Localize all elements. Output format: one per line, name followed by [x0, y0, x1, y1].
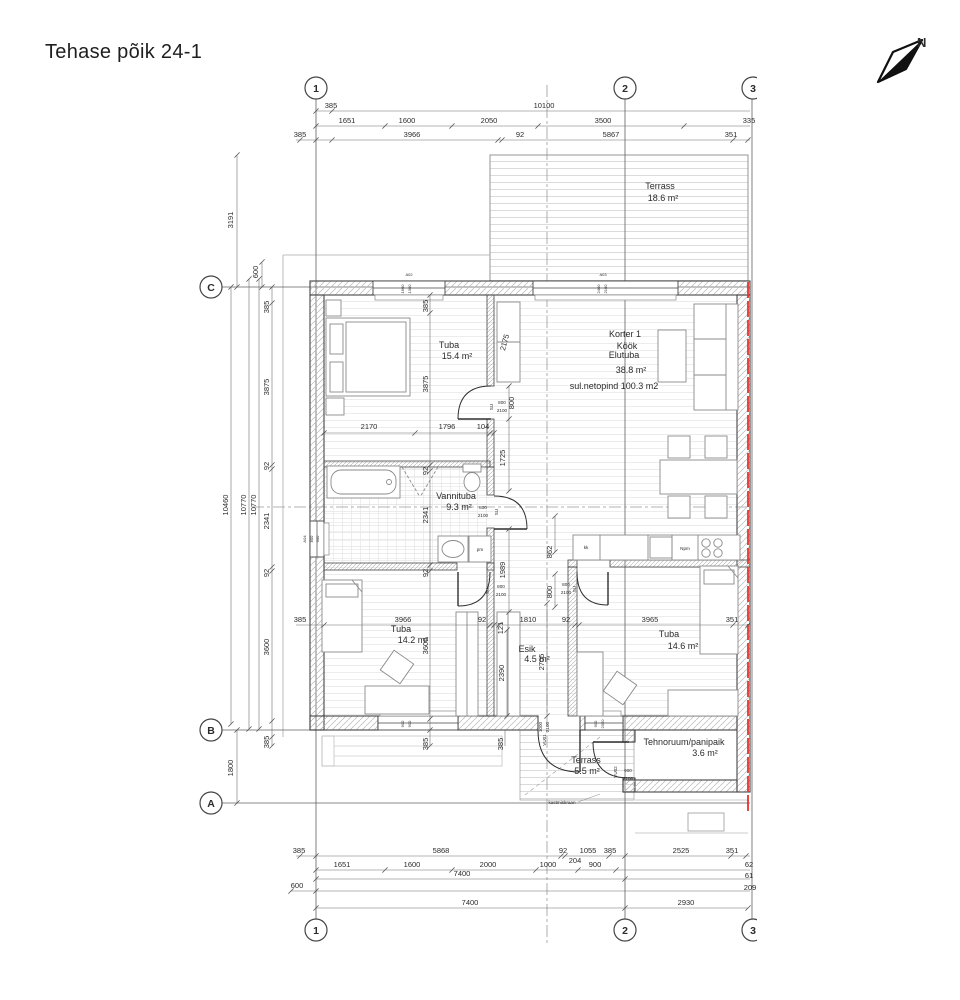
- floor-plan-drawing: Tehase põik 24-1 N: [0, 0, 960, 1000]
- svg-text:385: 385: [294, 615, 307, 624]
- hall-name: Esik: [518, 644, 536, 654]
- svg-text:600: 600: [315, 535, 320, 542]
- svg-text:351: 351: [726, 846, 739, 855]
- svg-text:800: 800: [562, 582, 570, 587]
- svg-text:62: 62: [745, 860, 753, 869]
- bedroom2-name: Tuba: [391, 624, 411, 634]
- svg-text:2100: 2100: [497, 408, 508, 413]
- washbasin: [438, 536, 468, 562]
- svg-text:7400: 7400: [454, 869, 471, 878]
- south-deck-steps: [322, 736, 502, 766]
- svg-text:3191: 3191: [226, 212, 235, 229]
- bathroom-name: Vannituba: [436, 491, 476, 501]
- svg-text:SU: SU: [489, 404, 494, 410]
- svg-text:3966: 3966: [404, 130, 421, 139]
- drawing-title: Tehase põik 24-1: [45, 41, 202, 63]
- svg-text:92: 92: [516, 130, 524, 139]
- svg-text:862: 862: [545, 546, 554, 559]
- svg-text:1725: 1725: [498, 450, 507, 467]
- svg-text:14.6 m²: 14.6 m²: [668, 641, 699, 651]
- svg-text:800: 800: [498, 400, 506, 405]
- svg-text:385: 385: [421, 738, 430, 751]
- svg-text:2000: 2000: [480, 860, 497, 869]
- svg-text:92: 92: [262, 462, 271, 470]
- svg-text:2100: 2100: [623, 776, 634, 781]
- svg-text:92: 92: [562, 615, 570, 624]
- svg-text:2100: 2100: [496, 592, 507, 597]
- svg-text:1: 1: [313, 925, 319, 937]
- window-a02: A02 1600 1300: [373, 272, 445, 300]
- svg-text:1: 1: [313, 83, 319, 95]
- svg-text:2400: 2400: [596, 284, 601, 294]
- svg-text:2050: 2050: [481, 116, 498, 125]
- terrace-south-name: Terrass: [571, 755, 601, 765]
- coffee-table: [658, 330, 686, 382]
- svg-text:800: 800: [479, 505, 487, 510]
- svg-text:92: 92: [262, 569, 271, 577]
- svg-text:3875: 3875: [262, 379, 271, 396]
- svg-text:351: 351: [726, 615, 739, 624]
- kitchen-kk-label: kk: [584, 545, 589, 550]
- window-a04-code: A04: [302, 535, 307, 543]
- svg-text:3.6 m²: 3.6 m²: [692, 748, 718, 758]
- svg-text:385: 385: [325, 101, 338, 110]
- svg-text:92: 92: [421, 569, 430, 577]
- svg-text:SU: SU: [494, 509, 499, 515]
- svg-text:600: 600: [291, 881, 304, 890]
- svg-text:2100: 2100: [478, 513, 489, 518]
- closet-bedroom2: [456, 612, 478, 716]
- svg-text:385: 385: [421, 300, 430, 313]
- washing-machine-label: pm: [477, 547, 484, 552]
- tap-label: kastmiskraan: [548, 800, 576, 805]
- svg-text:1055: 1055: [580, 846, 597, 855]
- svg-text:3875: 3875: [421, 376, 430, 393]
- svg-text:1600: 1600: [404, 860, 421, 869]
- svg-text:92: 92: [478, 615, 486, 624]
- svg-text:385: 385: [604, 846, 617, 855]
- svg-text:204: 204: [569, 856, 582, 865]
- terrace-top: [490, 155, 748, 281]
- svg-text:B: B: [207, 725, 215, 737]
- south-east-paving: [635, 800, 748, 833]
- svg-text:385: 385: [293, 846, 306, 855]
- svg-text:1300: 1300: [407, 284, 412, 294]
- svg-text:10100: 10100: [534, 101, 555, 110]
- svg-text:1651: 1651: [339, 116, 356, 125]
- svg-text:3500: 3500: [595, 116, 612, 125]
- svg-text:209: 209: [744, 883, 757, 892]
- svg-text:3: 3: [750, 925, 756, 937]
- net-area-label: sul.netopind 100.3 m2: [570, 381, 659, 391]
- svg-text:38.8 m²: 38.8 m²: [616, 365, 647, 375]
- svg-text:335: 335: [743, 116, 756, 125]
- svg-text:104: 104: [477, 422, 490, 431]
- svg-text:1000: 1000: [538, 721, 543, 732]
- svg-text:1600: 1600: [399, 116, 416, 125]
- svg-text:92: 92: [421, 467, 430, 475]
- svg-text:1800: 1800: [226, 760, 235, 777]
- svg-text:VU02: VU02: [613, 766, 618, 778]
- svg-text:1810: 1810: [520, 615, 537, 624]
- svg-text:385: 385: [262, 301, 271, 314]
- window-a03-code: A03: [599, 272, 607, 277]
- sofa: [694, 304, 738, 410]
- svg-text:5867: 5867: [603, 130, 620, 139]
- svg-text:2170: 2170: [361, 422, 378, 431]
- wardrobe-bedroom3: [577, 652, 603, 716]
- svg-text:900: 900: [589, 860, 602, 869]
- svg-text:7400: 7400: [462, 898, 479, 907]
- svg-text:900: 900: [407, 720, 412, 727]
- svg-text:1600: 1600: [400, 284, 405, 294]
- plan-area: A02 1600 1300 A03 2400 2100 A04 800 600: [200, 77, 764, 945]
- svg-text:2050: 2050: [600, 719, 605, 729]
- svg-text:15.4 m²: 15.4 m²: [442, 351, 473, 361]
- bedroom3-name: Tuba: [659, 629, 679, 639]
- svg-text:800: 800: [497, 584, 505, 589]
- svg-text:800: 800: [545, 586, 554, 599]
- bathtub: [327, 466, 400, 498]
- svg-text:1000: 1000: [540, 860, 557, 869]
- svg-text:385: 385: [294, 130, 307, 139]
- svg-text:SU: SU: [485, 588, 490, 594]
- svg-text:900: 900: [400, 720, 405, 727]
- svg-text:10770: 10770: [239, 495, 248, 516]
- svg-text:18.6 m²: 18.6 m²: [648, 193, 679, 203]
- window-a04: A04 800 600: [302, 521, 329, 557]
- svg-text:800: 800: [507, 397, 516, 410]
- svg-text:2341: 2341: [262, 513, 271, 530]
- svg-text:600: 600: [251, 266, 260, 279]
- terrace-south: [520, 730, 634, 800]
- toilet: [463, 464, 481, 492]
- north-arrow-icon: N: [878, 35, 926, 82]
- svg-text:1796: 1796: [439, 422, 456, 431]
- svg-text:900: 900: [593, 720, 598, 727]
- bed-bedroom2: [322, 580, 362, 652]
- svg-text:3600: 3600: [421, 638, 430, 655]
- svg-text:2100: 2100: [545, 721, 550, 732]
- svg-text:3966: 3966: [395, 615, 412, 624]
- svg-text:2: 2: [622, 925, 628, 937]
- svg-text:3: 3: [750, 83, 756, 95]
- svg-text:10770: 10770: [249, 495, 258, 516]
- svg-text:121: 121: [496, 622, 505, 635]
- kitchen-counter: [573, 535, 740, 560]
- svg-text:2100: 2100: [603, 284, 608, 294]
- svg-text:C: C: [207, 282, 215, 294]
- terrace-top-name: Terrass: [645, 181, 675, 191]
- svg-text:2341: 2341: [421, 507, 430, 524]
- svg-text:10460: 10460: [221, 495, 230, 516]
- svg-text:2930: 2930: [678, 898, 695, 907]
- svg-text:Elutuba: Elutuba: [609, 350, 640, 360]
- svg-text:2100: 2100: [561, 590, 572, 595]
- svg-text:VU01: VU01: [542, 734, 547, 746]
- svg-text:3965: 3965: [642, 615, 659, 624]
- svg-text:1989: 1989: [498, 562, 507, 579]
- svg-text:5.5 m²: 5.5 m²: [574, 766, 600, 776]
- svg-text:9.3 m²: 9.3 m²: [446, 502, 472, 512]
- svg-text:61: 61: [745, 871, 753, 880]
- svg-text:3600: 3600: [262, 639, 271, 656]
- north-label: N: [917, 35, 926, 50]
- svg-text:2390: 2390: [497, 665, 506, 682]
- svg-text:2705: 2705: [537, 654, 546, 671]
- tech-room-name: Tehnoruum/panipaik: [643, 737, 725, 747]
- sink-label: Npm: [680, 546, 690, 551]
- svg-text:92: 92: [559, 846, 567, 855]
- window-a02-code: A02: [405, 272, 413, 277]
- svg-text:SU: SU: [572, 586, 577, 592]
- bed-bedroom3: [700, 566, 738, 654]
- svg-text:385: 385: [262, 736, 271, 749]
- floor-plan-page: Tehase põik 24-1 N: [0, 0, 960, 1000]
- apartment-label: Korter 1: [609, 329, 641, 339]
- svg-text:5868: 5868: [433, 846, 450, 855]
- bedroom1-name: Tuba: [439, 340, 459, 350]
- svg-text:2: 2: [622, 83, 628, 95]
- svg-text:800: 800: [309, 535, 314, 542]
- svg-text:2525: 2525: [673, 846, 690, 855]
- svg-text:385: 385: [496, 738, 505, 751]
- svg-text:900: 900: [624, 768, 632, 773]
- svg-text:A: A: [207, 798, 215, 810]
- svg-text:1651: 1651: [334, 860, 351, 869]
- svg-text:351: 351: [725, 130, 738, 139]
